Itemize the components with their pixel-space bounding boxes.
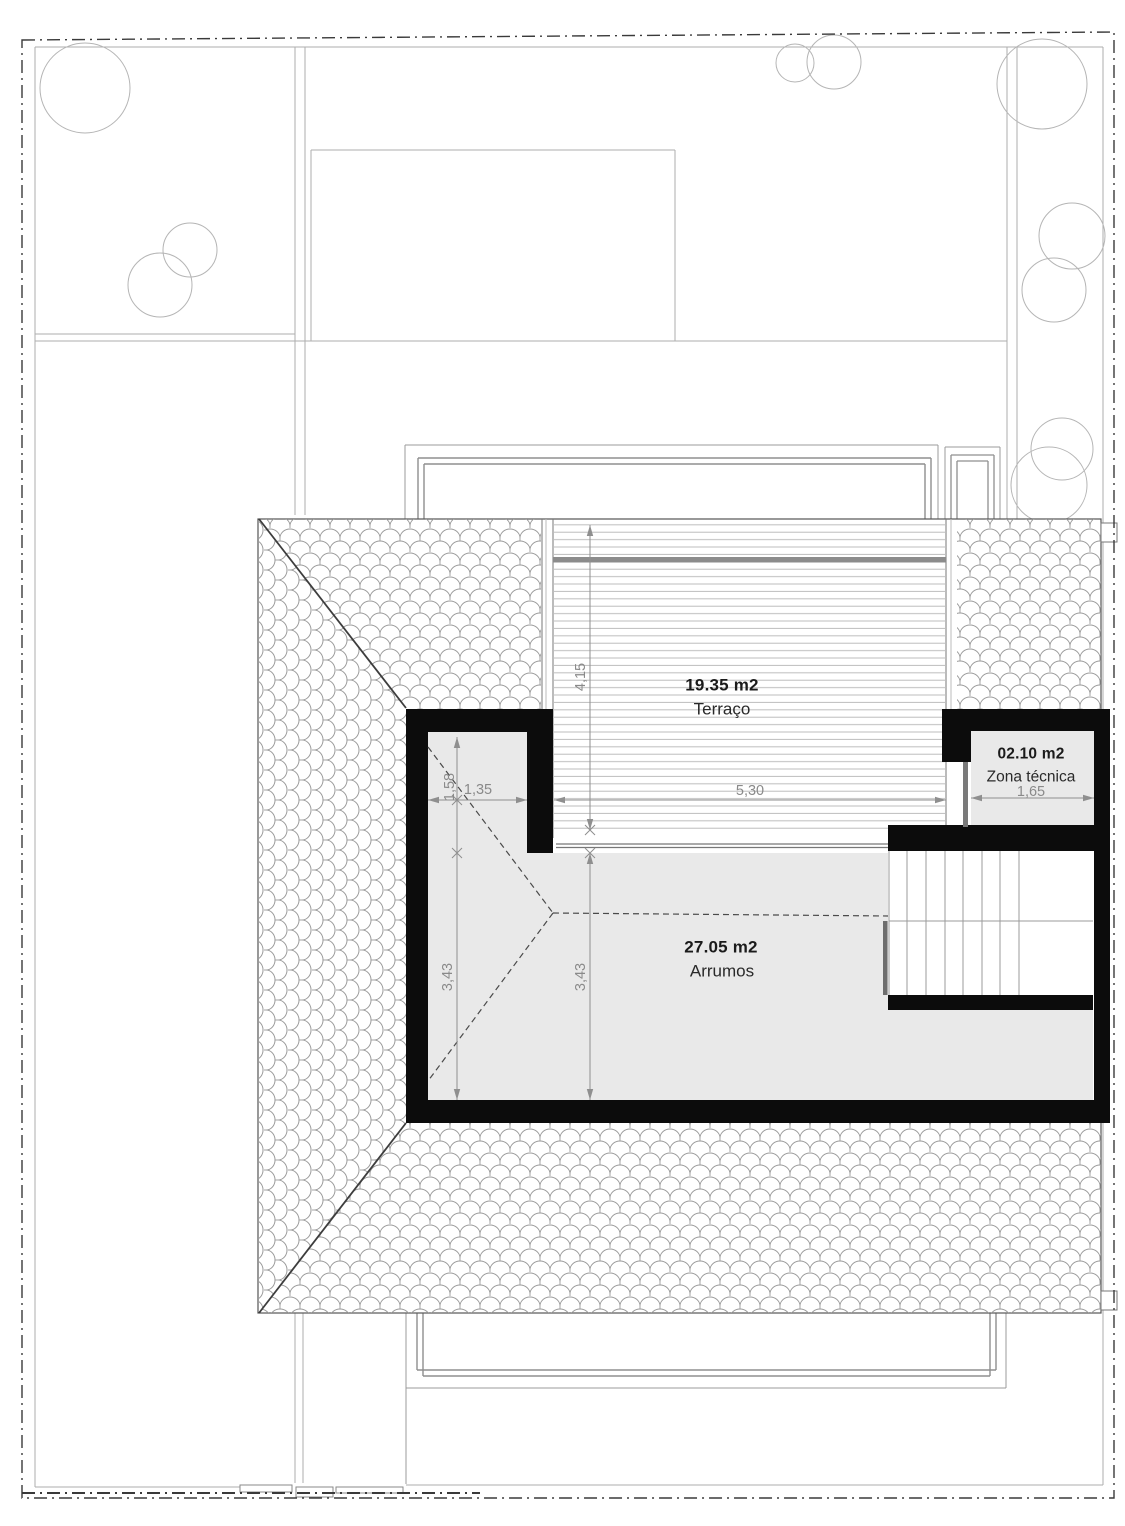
room-name-terraco: Terraço (694, 701, 751, 718)
door-leaf (963, 762, 968, 827)
roof-floor-plan: 19.35 m2 Terraço 27.05 m2 Arrumos 02.10 … (0, 0, 1125, 1526)
tree-icon (1039, 203, 1105, 269)
wall (942, 709, 971, 762)
tree-icon (1022, 258, 1086, 322)
tree-icon (1011, 447, 1087, 523)
wall (888, 825, 1110, 851)
dimension-nook-width: 1,35 (464, 783, 492, 798)
dimension-storage-depth-left: 3,43 (441, 963, 456, 991)
dimension-storage-depth-right: 3,43 (574, 963, 589, 991)
wall (406, 709, 553, 732)
dimension-nook-depth: 1,58 (443, 773, 458, 801)
room-area-terraco: 19.35 m2 (685, 677, 758, 694)
roof-tiles-south (259, 1123, 1101, 1313)
wall (1094, 709, 1110, 1123)
room-name-arrumos: Arrumos (690, 963, 754, 980)
wall (888, 995, 1093, 1010)
terrace-edge-band (553, 557, 946, 563)
tree-icon (997, 39, 1087, 129)
dimension-terrace-width: 5,30 (736, 784, 764, 799)
tree-icon (776, 44, 814, 82)
wall (406, 709, 428, 1123)
roof-tiles-northeast (957, 519, 1101, 709)
floor-below-outline-top (405, 445, 1000, 519)
wall (527, 732, 553, 853)
tree-icon (128, 253, 192, 317)
staircase (883, 848, 1093, 995)
tree-icon (163, 223, 217, 277)
plan-drawing (0, 0, 1125, 1526)
floor-below-outline-bottom (240, 1313, 1006, 1497)
dimension-terrace-depth: 4,15 (574, 663, 589, 691)
room-area-zona-tecnica: 02.10 m2 (997, 746, 1064, 762)
tree-icon (40, 43, 130, 133)
tree-icon (807, 35, 861, 89)
dimension-technical-zone-width: 1,65 (1017, 785, 1045, 800)
room-area-arrumos: 27.05 m2 (684, 939, 757, 956)
stair-handrail (883, 921, 888, 995)
room-name-zona-tecnica: Zona técnica (987, 769, 1076, 785)
wall (406, 1100, 1110, 1123)
